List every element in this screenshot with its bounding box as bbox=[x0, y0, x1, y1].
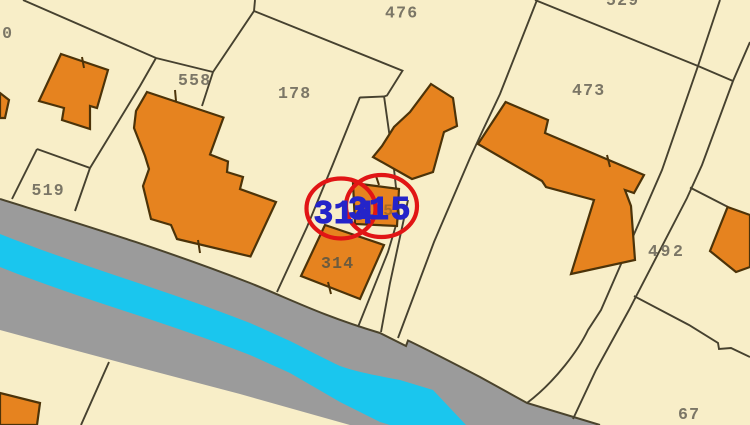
svg-text:476: 476 bbox=[385, 4, 418, 23]
svg-text:519: 519 bbox=[32, 181, 65, 200]
svg-text:529: 529 bbox=[606, 0, 639, 10]
svg-text:492: 492 bbox=[648, 242, 686, 261]
svg-text:315: 315 bbox=[348, 192, 412, 229]
svg-text:178: 178 bbox=[278, 84, 311, 103]
svg-text:473: 473 bbox=[572, 81, 605, 100]
svg-text:314: 314 bbox=[321, 254, 354, 273]
svg-text:558: 558 bbox=[178, 71, 211, 90]
svg-text:50: 50 bbox=[0, 24, 13, 43]
svg-text:67: 67 bbox=[678, 405, 700, 424]
